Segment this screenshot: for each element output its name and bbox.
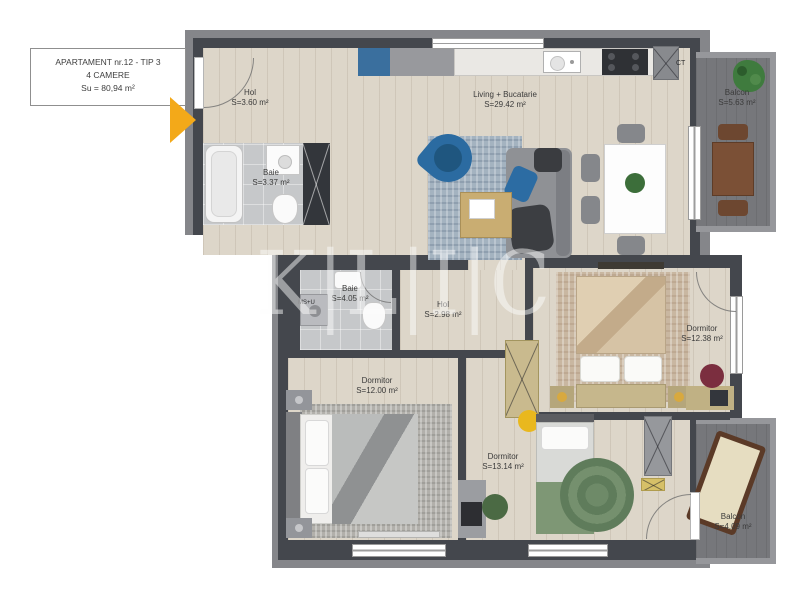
bedroom3-pillow-1 bbox=[580, 356, 620, 382]
room-label-balcon-1: BalconS=5.63 m² bbox=[687, 88, 787, 109]
dining-table bbox=[604, 144, 666, 234]
bedroom1-nightstand-bottom bbox=[286, 518, 312, 538]
bedroom2-tall-wardrobe bbox=[505, 340, 539, 418]
coffee-table bbox=[460, 192, 512, 238]
bedroom2-wardrobe bbox=[644, 416, 672, 476]
bedroom2-pillow bbox=[541, 426, 589, 450]
floor-plan-page: CT MS+U bbox=[0, 0, 800, 600]
bedroom2-round-rug bbox=[560, 458, 634, 532]
bedroom1-radiator bbox=[358, 531, 440, 538]
bedroom1-duvet bbox=[332, 414, 418, 524]
sofa-headrest bbox=[534, 148, 562, 172]
room-label-baie-1: BaieS=3.37 m² bbox=[221, 168, 321, 189]
bedroom2-chair bbox=[482, 494, 508, 520]
dining-chair-bottom bbox=[617, 236, 645, 255]
dining-chair-left-1 bbox=[581, 154, 600, 182]
bedroom2-window bbox=[528, 544, 608, 557]
living-top-window bbox=[432, 38, 544, 49]
balcony-top-chair-2 bbox=[718, 200, 748, 216]
bedroom3-headboard bbox=[576, 384, 666, 408]
bedroom3-wall-shelf bbox=[598, 262, 664, 269]
toilet-2 bbox=[362, 302, 386, 330]
kitchen-cabinet bbox=[390, 48, 454, 76]
entrance-arrow-icon bbox=[170, 97, 196, 143]
bedroom3-nightstand-left bbox=[550, 386, 574, 408]
room-label-dormitor-13-14: DormitorS=13.14 m² bbox=[453, 452, 553, 473]
toilet-1 bbox=[272, 194, 298, 224]
bedroom1-pillow-1 bbox=[305, 420, 329, 466]
balcony-top-chair-1 bbox=[718, 124, 748, 140]
bedroom3-desk bbox=[686, 386, 734, 410]
room-label-balcon-2: BalconS=4.09 m² bbox=[683, 512, 783, 533]
boiler-label: CT bbox=[676, 60, 696, 67]
room-label-hol-1: HolS=3.60 m² bbox=[200, 88, 300, 109]
kitchen-cooktop bbox=[602, 49, 648, 75]
bedroom1-window bbox=[352, 544, 446, 557]
kitchen-sink bbox=[543, 51, 581, 73]
bedroom1-nightstand-top bbox=[286, 390, 312, 410]
dining-chair-left-2 bbox=[581, 196, 600, 224]
sofa-cushion-dark bbox=[507, 203, 555, 254]
bedroom3-pillow-2 bbox=[624, 356, 662, 382]
room-label-dormitor-12-00: DormitorS=12.00 m² bbox=[327, 376, 427, 397]
room-label-baie-2: BaieS=4.05 m² bbox=[300, 284, 400, 305]
apartment-title: APARTAMENT nr.12 - TIP 3 bbox=[31, 56, 185, 69]
bedroom2-chest bbox=[641, 478, 665, 491]
room-label-living: Living + BucatarieS=29.42 m² bbox=[425, 90, 585, 111]
kitchen-fridge bbox=[358, 48, 390, 76]
apartment-area: Su = 80,94 m² bbox=[31, 82, 185, 95]
room-label-dormitor-12-38: DormitorS=12.38 m² bbox=[650, 324, 754, 345]
apartment-info-box: APARTAMENT nr.12 - TIP 3 4 CAMERE Su = 8… bbox=[30, 48, 186, 106]
apartment-rooms-count: 4 CAMERE bbox=[31, 69, 185, 82]
balcony-top-door-window bbox=[688, 126, 701, 220]
balcony-top-table bbox=[712, 142, 754, 196]
dining-chair-top bbox=[617, 124, 645, 143]
room-label-hol-2: HolS=2.98 m² bbox=[393, 300, 493, 321]
bedroom3-chair bbox=[700, 364, 724, 388]
bedroom1-pillow-2 bbox=[305, 468, 329, 514]
